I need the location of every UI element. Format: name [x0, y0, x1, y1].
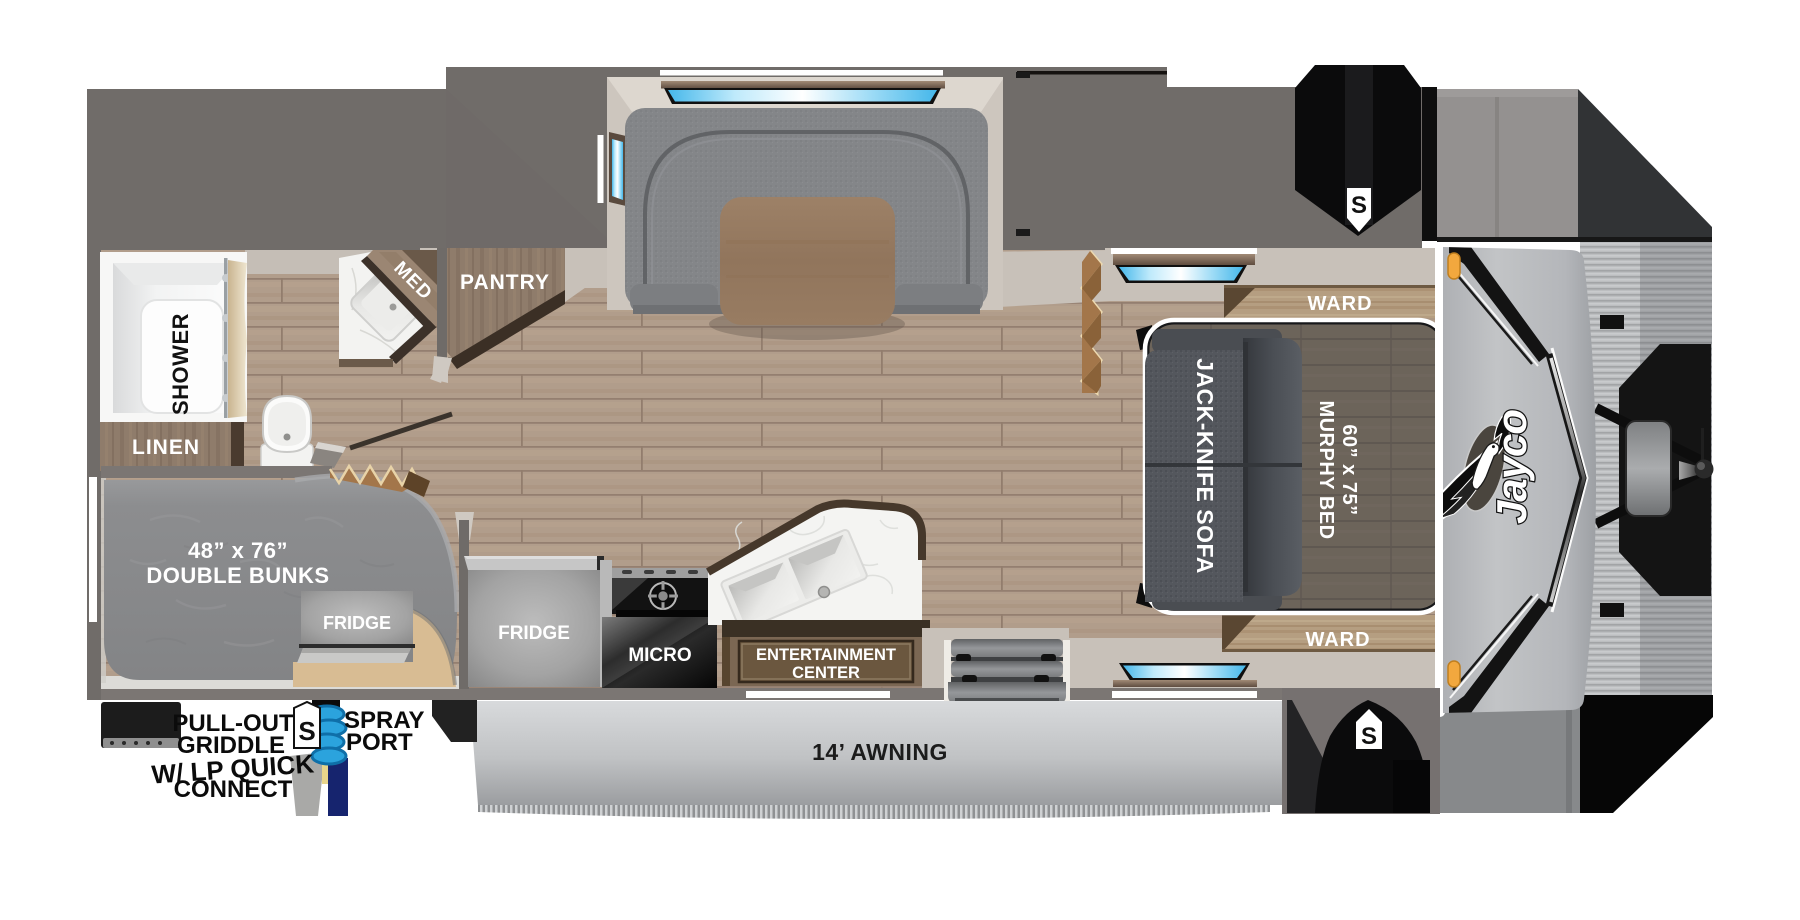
svg-text:MICRO: MICRO	[628, 645, 691, 666]
svg-text:ENTERTAINMENT: ENTERTAINMENT	[756, 646, 896, 664]
svg-text:DOUBLE BUNKS: DOUBLE BUNKS	[146, 563, 329, 588]
svg-text:14’ AWNING: 14’ AWNING	[812, 739, 948, 765]
svg-text:WARD: WARD	[1305, 629, 1370, 651]
svg-text:Jayco: Jayco	[1488, 410, 1535, 524]
svg-text:S: S	[1351, 192, 1367, 219]
svg-text:PORT: PORT	[346, 729, 413, 756]
svg-text:JACK-KNIFE SOFA: JACK-KNIFE SOFA	[1192, 358, 1218, 574]
svg-text:S: S	[1361, 723, 1377, 750]
svg-text:FRIDGE: FRIDGE	[323, 613, 391, 633]
svg-text:WARD: WARD	[1307, 293, 1372, 315]
svg-text:LINEN: LINEN	[132, 436, 200, 459]
svg-text:SHOWER: SHOWER	[168, 313, 193, 415]
svg-text:CONNECT: CONNECT	[174, 776, 293, 803]
svg-text:60” x 75”: 60” x 75”	[1338, 424, 1360, 515]
svg-text:MURPHY BED: MURPHY BED	[1315, 400, 1337, 539]
svg-text:CENTER: CENTER	[792, 664, 860, 682]
svg-text:48” x 76”: 48” x 76”	[188, 538, 288, 563]
svg-text:S: S	[298, 716, 315, 746]
svg-text:FRIDGE: FRIDGE	[498, 623, 570, 644]
svg-text:PANTRY: PANTRY	[460, 271, 550, 294]
